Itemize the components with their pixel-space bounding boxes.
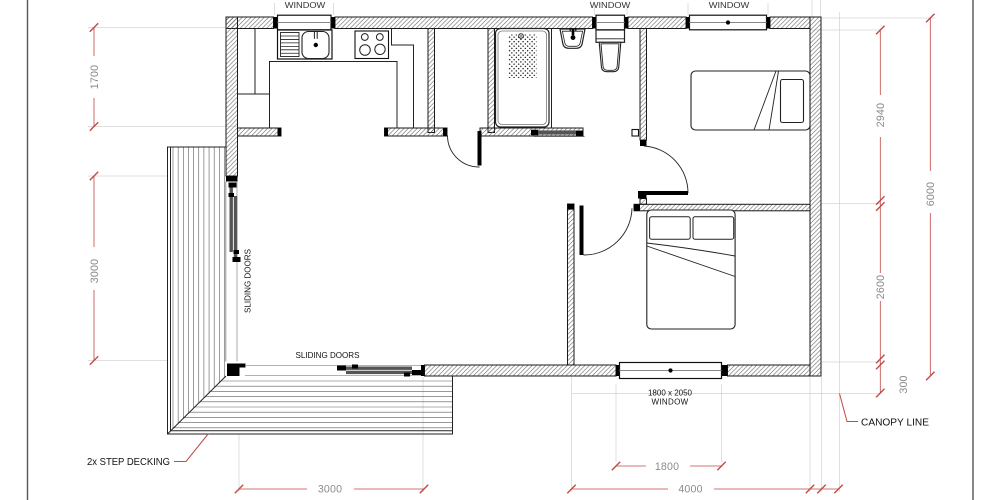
svg-text:WINDOW: WINDOW: [590, 0, 631, 10]
svg-text:2940: 2940: [875, 103, 887, 127]
svg-text:1800: 1800: [655, 461, 679, 473]
svg-text:SLIDING DOORS: SLIDING DOORS: [243, 249, 253, 313]
svg-text:WINDOW: WINDOW: [285, 0, 326, 10]
svg-text:WINDOW: WINDOW: [652, 398, 689, 407]
svg-text:1700: 1700: [89, 65, 101, 89]
svg-text:3000: 3000: [89, 259, 101, 283]
svg-text:300: 300: [898, 375, 910, 393]
svg-text:CANOPY LINE: CANOPY LINE: [861, 418, 929, 429]
svg-text:1800 x 2050: 1800 x 2050: [648, 389, 693, 398]
svg-text:4000: 4000: [678, 484, 702, 496]
svg-text:3000: 3000: [318, 484, 342, 496]
svg-text:SLIDING DOORS: SLIDING DOORS: [296, 350, 360, 360]
svg-text:6000: 6000: [925, 182, 937, 206]
svg-text:WINDOW: WINDOW: [709, 0, 750, 10]
svg-text:2x STEP DECKING: 2x STEP DECKING: [87, 457, 170, 468]
svg-text:2600: 2600: [875, 275, 887, 299]
